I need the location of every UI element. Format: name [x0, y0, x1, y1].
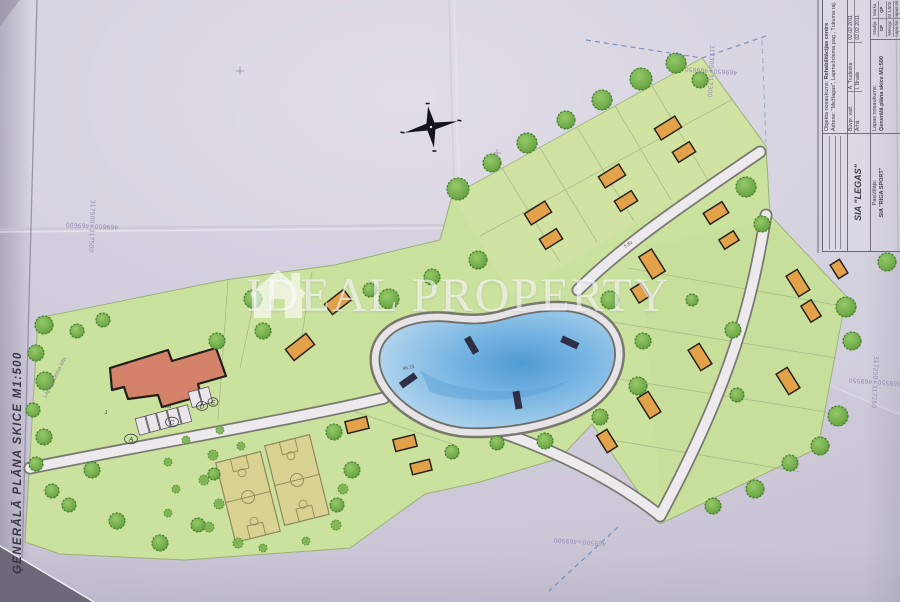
- sig-role: Arhit.: [855, 91, 861, 133]
- parking-letter-c: C: [170, 420, 175, 427]
- title-block: Objekta nosaukums: Rehabilitācijas centr…: [822, 0, 900, 252]
- stadija-value: GP: [879, 19, 885, 38]
- sig-name: A. Trudeska: [848, 42, 854, 92]
- coord-label: 317300+317300: [706, 45, 716, 98]
- coord-label: 317500+317500: [87, 200, 96, 253]
- compass-rose-icon: [397, 99, 465, 156]
- revision-table: [823, 133, 847, 251]
- photographed-site-plan: 96.25 A C D E 1 N.M: [0, 0, 900, 602]
- sheet-side-title: ĢENERĀLĀ PLĀNA SKICE M1:500: [12, 351, 24, 574]
- coord-label: 317250+317250: [870, 356, 880, 409]
- sig-name: I. Brade: [855, 42, 861, 92]
- scale-value: M 1:500: [887, 1, 893, 19]
- page-label: Lapa Nr.: [894, 19, 900, 38]
- marka-value: ĢP: [879, 1, 885, 19]
- stage-scale-grid: Stadija Marka GP ĢP Mērogs M 1:500 Lapa …: [871, 0, 900, 39]
- parking-row-number: 1: [104, 410, 107, 416]
- client-label: Pasūtītājs:: [872, 180, 878, 206]
- client-name: SIA "RIGA SPORT": [879, 168, 885, 218]
- signature-table: Būvpr. vad. A. Trudeska 02.02.2011 Arhit…: [848, 0, 870, 133]
- pencil-cross-marks: [236, 67, 501, 157]
- object-name: Rehabilitācijas centrs: [824, 23, 830, 80]
- pages-label: Lapas sk.: [894, 1, 900, 19]
- scale-label: Mērogs: [887, 19, 893, 38]
- object-label: Objekta nosaukums:: [824, 81, 830, 131]
- sig-date: 02.02.2011: [855, 0, 861, 42]
- parking-letter-a: A: [128, 437, 133, 444]
- sig-date: 02.02.2011: [848, 0, 854, 42]
- stadija-label: Stadija: [872, 19, 878, 38]
- sheet-name-value: Ģenerālā plāna skice M1:500: [879, 56, 885, 131]
- company-name: SIA "LEGAS": [848, 133, 870, 251]
- client-cell: Pasūtītājs: SIA "RIGA SPORT": [871, 133, 900, 251]
- pond: 96.25: [379, 311, 615, 429]
- marka-label: Marka: [872, 1, 878, 19]
- sheet-name-label: Lapas nosaukums:: [872, 85, 878, 131]
- signature-row: Arhit. I. Brade 02.02.2011: [855, 0, 861, 133]
- address-value: "Mežlagas", Lapmežciema pag., Tukuma raj…: [831, 2, 837, 111]
- sig-role: Būvpr. vad.: [848, 91, 854, 133]
- address-label: Adrese:: [831, 112, 837, 131]
- title-block-object-cell: Objekta nosaukums: Rehabilitācijas centr…: [823, 0, 847, 133]
- site-plan-drawing: 96.25 A C D E 1 N.M: [0, 0, 900, 602]
- sheet-name-cell: Lapas nosaukums: Ģenerālā plāna skice M1…: [871, 39, 900, 133]
- signature-row: Būvpr. vad. A. Trudeska 02.02.2011: [848, 0, 855, 133]
- parking-note: N.M: [163, 404, 172, 409]
- parking-letter-d: D: [200, 404, 205, 411]
- parking-letter-e: E: [211, 400, 216, 407]
